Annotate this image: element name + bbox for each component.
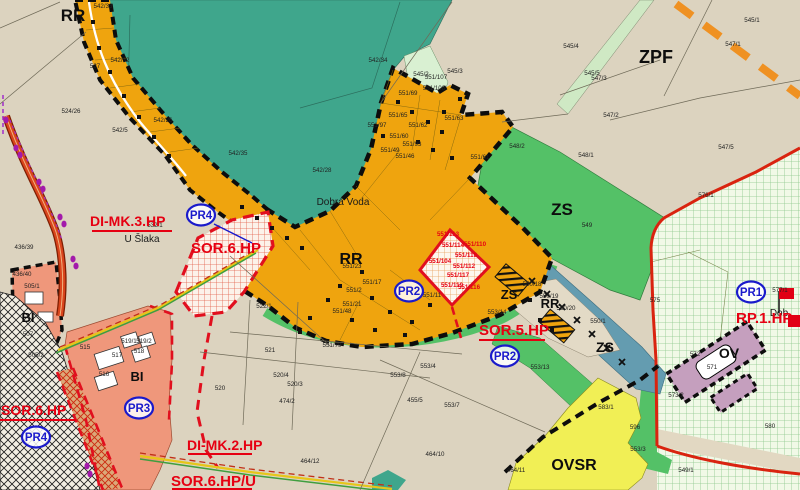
overlay-label: SOR.5.HP xyxy=(479,322,549,339)
parcel-label: 572 xyxy=(690,351,701,358)
parcel-label: 436/40 xyxy=(13,271,32,278)
parcel-label: 551/21 xyxy=(343,301,362,308)
cottage-icon xyxy=(360,270,364,274)
parcel-label: 553/7 xyxy=(444,402,460,409)
cottage-icon xyxy=(122,94,126,98)
cottage-icon xyxy=(373,328,377,332)
parcel-label: 542/34 xyxy=(369,57,388,64)
parcel-label: 551/11 xyxy=(423,292,442,299)
parcel-label: 545/5 xyxy=(584,70,600,77)
parcel-label: 551/46 xyxy=(396,153,415,160)
parcel-label: 517 xyxy=(112,352,123,359)
parcel-label: 551/60 xyxy=(390,133,409,140)
parcel-label: 545/4 xyxy=(563,43,579,50)
parcel-label: 551/110 xyxy=(464,241,487,248)
parcel-label: 520/3 xyxy=(287,381,303,388)
pr-marker-text: PR2 xyxy=(494,351,516,363)
cottage-icon xyxy=(300,246,304,250)
zone-label: BI xyxy=(131,369,144,384)
parcel-label: 580 xyxy=(765,423,776,430)
parcel-label: 542/32 xyxy=(111,57,130,64)
pr-marker-text: PR3 xyxy=(128,403,150,415)
parcel-label: 551/116 xyxy=(458,284,481,291)
utility-point-icon xyxy=(57,214,62,221)
cottage-icon xyxy=(285,236,289,240)
utility-point-icon xyxy=(3,117,8,124)
cottage-icon xyxy=(388,310,392,314)
parcel-label: 551/17 xyxy=(363,279,382,286)
parcel-label: 553/14 xyxy=(488,309,507,316)
parcel-label: 551/93 xyxy=(403,141,422,148)
parcel-label: 550/20 xyxy=(557,305,576,312)
parcel-label: 507 xyxy=(23,331,34,338)
parcel-label: 550/18 xyxy=(523,281,542,288)
cottage-icon xyxy=(108,70,112,74)
parcel-label: 548/1 xyxy=(578,152,594,159)
parcel-label: 464/10 xyxy=(426,451,445,458)
utility-point-icon xyxy=(61,221,66,228)
cottage-icon xyxy=(381,134,385,138)
zone-label: RR xyxy=(339,251,363,268)
parcel-label: 551/104 xyxy=(429,258,452,265)
pr-marker-pr4: PR4 xyxy=(187,205,215,226)
cottage-icon xyxy=(370,296,374,300)
cottage-icon xyxy=(550,328,554,332)
zone-label: RR xyxy=(541,296,560,311)
parcel-label: 573/2 xyxy=(668,392,684,399)
parcel-label: 516 xyxy=(99,371,110,378)
zone-label: ZS xyxy=(501,287,518,302)
parcel-label: 520/4 xyxy=(273,372,289,379)
overlay-label: DI-MK.2.HP xyxy=(187,437,262,453)
parcel-label: 583/1 xyxy=(598,404,614,411)
cottage-icon xyxy=(458,97,462,101)
place-name: Dobrá Voda xyxy=(317,197,370,208)
utility-point-icon xyxy=(84,463,89,470)
parcel-label: 547/1 xyxy=(725,41,741,48)
parcel-label: 551/112 xyxy=(453,263,476,270)
parcel-label: 551/113 xyxy=(437,231,460,238)
parcel-label: 542/26 xyxy=(154,117,173,124)
parcel-label: 551/65 xyxy=(389,112,408,119)
cottage-icon xyxy=(97,46,101,50)
cottage-icon xyxy=(528,298,532,302)
parcel-label: 553/3 xyxy=(630,446,646,453)
pr-marker-pr1: PR1 xyxy=(737,282,765,303)
cottage-icon xyxy=(410,110,414,114)
parcel-label: 505/2 xyxy=(28,352,44,359)
cottage-icon xyxy=(338,284,342,288)
pr-marker-pr2: PR2 xyxy=(395,281,423,302)
zone-label: BI xyxy=(22,310,35,325)
cottage-icon xyxy=(440,130,444,134)
parcel-label: 551/108 xyxy=(423,85,446,92)
parcel-label: 575 xyxy=(650,297,661,304)
utility-point-icon xyxy=(36,179,41,186)
parcel-label: 571 xyxy=(707,364,718,371)
parcel-label: 524/26 xyxy=(62,108,81,115)
cottage-icon xyxy=(137,115,141,119)
parcel-label: 542/35 xyxy=(229,150,248,157)
parcel-label: 520 xyxy=(215,385,226,392)
utility-point-icon xyxy=(70,256,75,263)
cottage-icon xyxy=(326,298,330,302)
map-canvas: 542/33527524/26542/5542/32542/26542/3454… xyxy=(0,0,800,490)
cottage-icon xyxy=(255,216,259,220)
cottage-icon xyxy=(91,20,95,24)
cottage-icon xyxy=(152,135,156,139)
parcel-label: 551/114 xyxy=(442,242,465,249)
parcel-label: 515 xyxy=(80,344,91,351)
pr-marker-text: PR4 xyxy=(190,210,213,222)
cottage-icon xyxy=(298,330,302,334)
parcel-label: 551/79 xyxy=(323,342,342,349)
parcel-label: 551/61 xyxy=(471,154,490,161)
parcel-label: 553/4 xyxy=(420,363,436,370)
parcel-label: 464/11 xyxy=(507,467,526,474)
cottage-icon xyxy=(403,333,407,337)
parcel-label: 548/2 xyxy=(509,143,525,150)
zone-label: ZS xyxy=(551,200,573,219)
parcel-label: 518 xyxy=(134,348,145,355)
utility-point-icon xyxy=(17,152,22,159)
pr-marker-text: PR4 xyxy=(25,432,48,444)
parcel-label: 551/97 xyxy=(368,122,387,129)
pr-marker-text: PR1 xyxy=(740,287,763,299)
utility-point-icon xyxy=(73,263,78,270)
cottage-icon xyxy=(308,316,312,320)
cottage-icon xyxy=(442,110,446,114)
parcel-label: 551/63 xyxy=(445,115,464,122)
pr-marker-pr3: PR3 xyxy=(125,398,153,419)
cottage-icon xyxy=(450,156,454,160)
zone-label: ZS xyxy=(596,339,614,355)
parcel-label: 545/3 xyxy=(447,68,463,75)
parcel-label: 545/1 xyxy=(744,17,760,24)
cottage-icon xyxy=(167,154,171,158)
parcel-label: 596 xyxy=(630,424,641,431)
parcel-label: 519/1 xyxy=(121,338,137,345)
cottage-icon xyxy=(270,226,274,230)
cottage-icon xyxy=(350,318,354,322)
zoning-map: 542/33527524/26542/5542/32542/26542/3454… xyxy=(0,0,800,490)
cottage-icon xyxy=(428,303,432,307)
cottage-icon xyxy=(396,100,400,104)
parcel-label: 551/2 xyxy=(346,287,362,294)
parcel-label: 464/12 xyxy=(301,458,320,465)
parcel-label: 547/2 xyxy=(603,112,619,119)
parcel-label: 551/62 xyxy=(409,122,428,129)
parcel-label: 553/13 xyxy=(531,364,550,371)
parcel-label: 551/117 xyxy=(447,272,470,279)
parcel-label: 542/5 xyxy=(112,127,128,134)
parcel-label: 521 xyxy=(265,347,276,354)
utility-point-icon xyxy=(87,471,92,478)
parcel-label: 474/2 xyxy=(279,398,295,405)
cottage-icon xyxy=(431,148,435,152)
parcel-label: 551/48 xyxy=(333,308,352,315)
cottage-icon xyxy=(410,320,414,324)
place-name: U Šlaka xyxy=(124,232,159,245)
parcel-label: 551/107 xyxy=(425,74,448,81)
overlay-label: SOR.6.HP xyxy=(191,240,261,257)
pr-marker-pr4: PR4 xyxy=(22,427,50,448)
parcel-label: 455/5 xyxy=(407,397,423,404)
parcel-label: 542/28 xyxy=(313,167,332,174)
parcel-label: 550/1 xyxy=(590,318,606,325)
parcel-label: 505/1 xyxy=(24,283,40,290)
parcel-label: 519/2 xyxy=(136,338,152,345)
overlay-label: SOR.6.HP/U xyxy=(171,473,256,490)
parcel-label: 553/8 xyxy=(390,372,406,379)
parcel-label: 436/39 xyxy=(15,244,34,251)
parcel-label: 549/1 xyxy=(678,467,694,474)
zone-label: OV xyxy=(719,345,740,361)
overlay-label: DI-MK.3.HP xyxy=(90,213,165,229)
parcel-label: 577/1 xyxy=(772,287,788,294)
parcel-label: 551/118 xyxy=(455,252,478,259)
parcel-label: 542/33 xyxy=(94,3,113,10)
parcel-label: 576/1 xyxy=(698,192,714,199)
zone-label: ZPF xyxy=(639,47,673,67)
parcel-label: 549 xyxy=(582,222,593,229)
pr-marker-text: PR2 xyxy=(398,286,420,298)
utility-point-icon xyxy=(40,186,45,193)
parcel-label: 527 xyxy=(90,63,101,70)
cottage-icon xyxy=(240,205,244,209)
parcel-label: 547/5 xyxy=(718,144,734,151)
pr-marker-pr2: PR2 xyxy=(491,346,519,367)
parcel-label: 551/69 xyxy=(399,90,418,97)
overlay-label: SOR.6.HP xyxy=(1,402,66,418)
zone-label: RR xyxy=(61,6,86,25)
corridor-orange-dashed xyxy=(676,4,800,96)
parcel-label: 522/1 xyxy=(256,303,272,310)
utility-point-icon xyxy=(13,145,18,152)
overlay-label: RP.1.HP xyxy=(736,310,792,327)
zone-label: OVSR xyxy=(551,457,597,474)
